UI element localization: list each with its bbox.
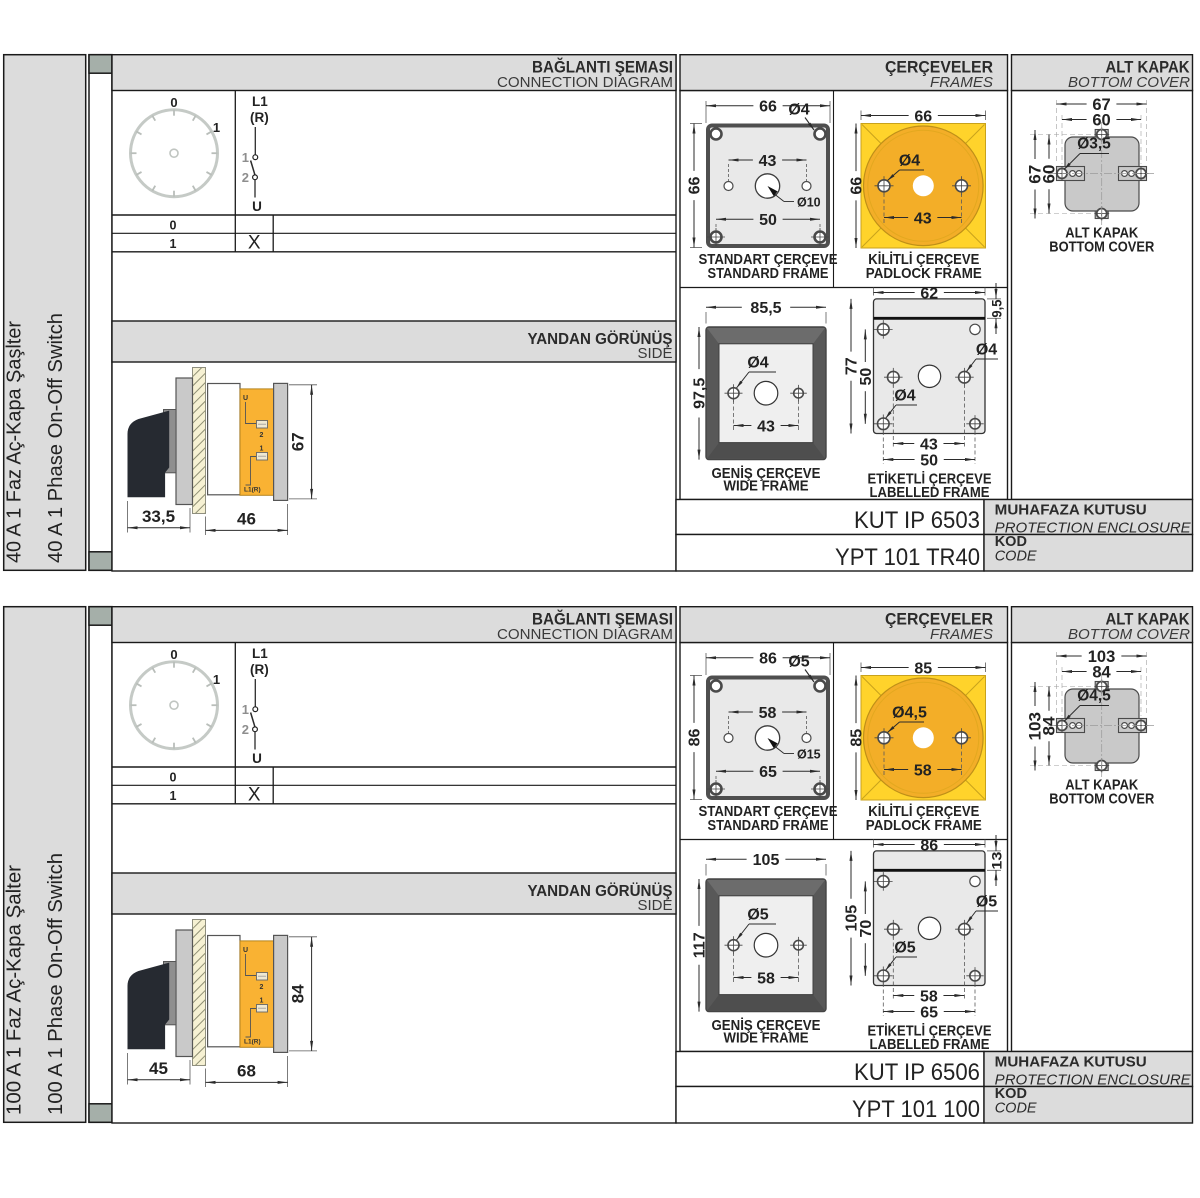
svg-text:(R): (R): [250, 662, 269, 677]
svg-text:(R): (R): [250, 110, 269, 125]
svg-text:86: 86: [920, 837, 938, 854]
svg-text:PADLOCK FRAME: PADLOCK FRAME: [866, 817, 982, 834]
svg-text:Ø5: Ø5: [788, 654, 809, 671]
svg-text:U: U: [252, 199, 262, 214]
svg-text:Ø4: Ø4: [976, 342, 997, 359]
svg-text:0: 0: [170, 95, 177, 110]
svg-text:STANDARD FRAME: STANDARD FRAME: [708, 817, 829, 834]
svg-text:2: 2: [242, 722, 249, 737]
svg-text:97,5: 97,5: [692, 378, 709, 409]
svg-text:Ø4,5: Ø4,5: [1077, 688, 1111, 705]
svg-text:40 A 1 Faz Aç-Kapa Şaşlter: 40 A 1 Faz Aç-Kapa Şaşlter: [4, 321, 26, 563]
svg-text:62: 62: [920, 285, 938, 302]
svg-text:Ø15: Ø15: [797, 748, 821, 762]
svg-text:1: 1: [242, 150, 249, 165]
svg-text:13: 13: [989, 851, 1005, 869]
svg-text:BOTTOM COVER: BOTTOM COVER: [1068, 626, 1190, 643]
svg-text:43: 43: [759, 153, 777, 170]
svg-text:0: 0: [170, 218, 177, 232]
svg-text:BOTTOM COVER: BOTTOM COVER: [1068, 74, 1190, 91]
svg-text:0: 0: [170, 647, 177, 662]
svg-text:85,5: 85,5: [750, 300, 781, 317]
svg-text:105: 105: [753, 852, 780, 869]
svg-text:66: 66: [687, 177, 704, 195]
svg-text:100 A 1 Faz Aç-Kapa Şalter: 100 A 1 Faz Aç-Kapa Şalter: [4, 865, 26, 1115]
svg-text:Ø4: Ø4: [894, 388, 915, 405]
svg-text:67: 67: [289, 432, 308, 451]
svg-text:117: 117: [692, 932, 709, 958]
svg-text:BOTTOM COVER: BOTTOM COVER: [1049, 790, 1154, 807]
svg-text:1: 1: [170, 789, 177, 803]
svg-text:Ø5: Ø5: [976, 894, 997, 911]
svg-text:U: U: [252, 751, 262, 766]
svg-text:50: 50: [858, 368, 875, 386]
svg-text:0: 0: [170, 770, 177, 784]
svg-text:50: 50: [920, 452, 938, 469]
svg-text:SIDE: SIDE: [638, 345, 673, 362]
svg-text:FRAMES: FRAMES: [930, 626, 993, 643]
svg-text:WIDE FRAME: WIDE FRAME: [724, 477, 809, 494]
svg-text:60: 60: [1040, 165, 1059, 184]
svg-text:43: 43: [757, 418, 775, 435]
svg-text:33,5: 33,5: [142, 507, 175, 526]
svg-text:1: 1: [213, 120, 220, 135]
svg-text:FRAMES: FRAMES: [930, 74, 993, 91]
svg-text:1: 1: [242, 702, 249, 717]
svg-text:L1: L1: [252, 94, 268, 109]
svg-text:60: 60: [1092, 111, 1110, 129]
svg-text:Ø4: Ø4: [899, 153, 920, 170]
svg-text:85: 85: [849, 729, 866, 747]
svg-text:1: 1: [170, 237, 177, 251]
svg-text:Ø10: Ø10: [797, 196, 821, 210]
svg-text:CONNECTION DIAGRAM: CONNECTION DIAGRAM: [497, 74, 673, 91]
svg-text:45: 45: [149, 1059, 168, 1078]
svg-text:KUT IP 6503: KUT IP 6503: [854, 507, 980, 534]
svg-text:U: U: [243, 947, 248, 954]
svg-text:Ø5: Ø5: [894, 940, 915, 957]
svg-text:43: 43: [920, 436, 938, 453]
svg-text:9,5: 9,5: [989, 299, 1005, 317]
svg-text:1: 1: [213, 672, 220, 687]
svg-text:2: 2: [260, 984, 264, 991]
svg-text:MUHAFAZA KUTUSU: MUHAFAZA KUTUSU: [995, 1055, 1147, 1071]
svg-text:2: 2: [242, 170, 249, 185]
svg-text:KUT IP 6506: KUT IP 6506: [854, 1059, 980, 1086]
svg-text:PADLOCK FRAME: PADLOCK FRAME: [866, 265, 982, 282]
svg-text:65: 65: [759, 764, 777, 781]
svg-text:L1(R): L1(R): [244, 487, 261, 494]
svg-text:85: 85: [914, 660, 932, 677]
svg-text:X: X: [248, 785, 261, 806]
svg-text:68: 68: [237, 1062, 256, 1081]
svg-text:100 A 1 Phase On-Off Switch: 100 A 1 Phase On-Off Switch: [45, 853, 67, 1115]
svg-text:CODE: CODE: [995, 1101, 1037, 1117]
svg-text:L1: L1: [252, 646, 268, 661]
svg-text:58: 58: [757, 970, 775, 987]
svg-text:CODE: CODE: [995, 549, 1037, 565]
svg-text:46: 46: [237, 510, 256, 529]
svg-text:84: 84: [1040, 716, 1059, 735]
svg-text:58: 58: [914, 762, 932, 779]
svg-text:Ø4: Ø4: [747, 355, 768, 372]
svg-text:Ø3,5: Ø3,5: [1077, 136, 1111, 153]
svg-text:40 A 1 Phase On-Off Switch: 40 A 1 Phase On-Off Switch: [45, 313, 67, 563]
svg-text:58: 58: [920, 988, 938, 1005]
svg-text:X: X: [248, 233, 261, 254]
svg-text:66: 66: [914, 108, 932, 125]
svg-text:84: 84: [289, 984, 308, 1003]
svg-text:CONNECTION DIAGRAM: CONNECTION DIAGRAM: [497, 626, 673, 643]
svg-text:Ø4: Ø4: [788, 102, 809, 119]
svg-text:1: 1: [260, 446, 264, 453]
svg-text:SIDE: SIDE: [638, 897, 673, 914]
svg-text:43: 43: [914, 210, 932, 227]
svg-text:MUHAFAZA KUTUSU: MUHAFAZA KUTUSU: [995, 503, 1147, 519]
svg-text:BOTTOM COVER: BOTTOM COVER: [1049, 238, 1154, 255]
svg-text:86: 86: [759, 651, 777, 668]
svg-text:66: 66: [849, 177, 866, 195]
svg-text:2: 2: [260, 432, 264, 439]
svg-text:1: 1: [260, 998, 264, 1005]
svg-text:STANDARD FRAME: STANDARD FRAME: [708, 265, 829, 282]
svg-text:66: 66: [759, 99, 777, 116]
svg-text:84: 84: [1092, 663, 1111, 681]
svg-text:50: 50: [759, 212, 777, 229]
svg-text:Ø4,5: Ø4,5: [892, 705, 927, 722]
svg-text:65: 65: [920, 1004, 938, 1021]
svg-text:LABELLED FRAME: LABELLED FRAME: [870, 484, 990, 501]
svg-text:86: 86: [687, 729, 704, 747]
svg-text:Ø5: Ø5: [747, 907, 768, 924]
svg-text:LABELLED FRAME: LABELLED FRAME: [870, 1036, 990, 1053]
svg-text:58: 58: [759, 705, 777, 722]
svg-text:U: U: [243, 395, 248, 402]
svg-text:YPT 101 TR40: YPT 101 TR40: [835, 544, 980, 571]
svg-text:YPT 101 100: YPT 101 100: [852, 1096, 980, 1123]
svg-text:L1(R): L1(R): [244, 1039, 261, 1046]
svg-text:WIDE FRAME: WIDE FRAME: [724, 1029, 809, 1046]
svg-text:70: 70: [858, 920, 875, 938]
